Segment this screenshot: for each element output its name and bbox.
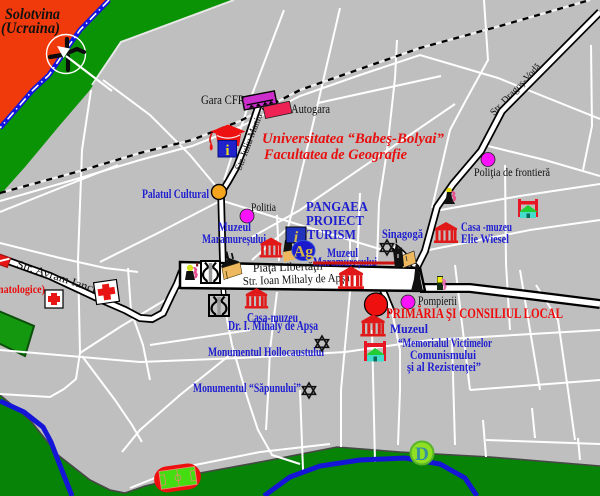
svg-text:TURISM: TURISM bbox=[307, 228, 356, 243]
svg-text:PROIECT: PROIECT bbox=[306, 214, 365, 229]
svg-text:Maramureşului: Maramureşului bbox=[202, 232, 266, 246]
svg-text:Palatul Cultural: Palatul Cultural bbox=[142, 187, 209, 201]
svg-text:natologice): natologice) bbox=[0, 282, 45, 296]
svg-text:Universitatea “Babeş-Bolyai”: Universitatea “Babeş-Bolyai” bbox=[262, 131, 444, 147]
svg-text:Sinagogă: Sinagogă bbox=[382, 227, 424, 241]
svg-text:Elie Wiesel: Elie Wiesel bbox=[461, 232, 509, 246]
svg-text:Ag: Ag bbox=[294, 244, 314, 261]
svg-text:Monumentul Hollocaustului: Monumentul Hollocaustului bbox=[208, 345, 324, 359]
svg-text:Gara CFR: Gara CFR bbox=[201, 93, 246, 107]
svg-text:şi al Rezistenţei”: şi al Rezistenţei” bbox=[407, 360, 481, 374]
svg-text:Facultatea de Geografie: Facultatea de Geografie bbox=[263, 147, 407, 163]
svg-text:(Ucraina): (Ucraina) bbox=[1, 20, 60, 37]
svg-text:D: D bbox=[415, 444, 429, 465]
svg-text:PANGAEA: PANGAEA bbox=[306, 200, 369, 215]
svg-text:PRIMĂRIA ŞI CONSILIUL LOCAL: PRIMĂRIA ŞI CONSILIUL LOCAL bbox=[386, 305, 563, 322]
svg-text:Poliţia de frontieră: Poliţia de frontieră bbox=[474, 167, 550, 179]
svg-text:Muzeul: Muzeul bbox=[390, 322, 428, 336]
svg-text:Monumentul “Săpunului”: Monumentul “Săpunului” bbox=[193, 381, 301, 395]
svg-text:Autogara: Autogara bbox=[291, 102, 330, 116]
svg-text:i: i bbox=[225, 143, 229, 159]
svg-text:Dr. I. Mihaly de Apşa: Dr. I. Mihaly de Apşa bbox=[228, 318, 318, 333]
svg-text:Politia: Politia bbox=[251, 202, 276, 214]
